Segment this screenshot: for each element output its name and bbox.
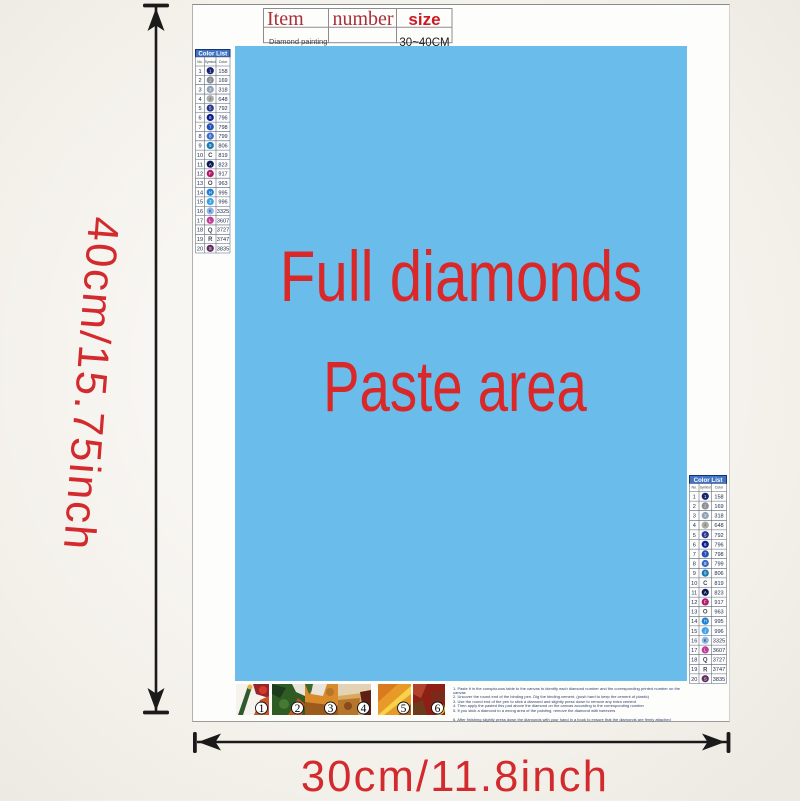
svg-text:Color List: Color List (198, 51, 227, 58)
svg-text:169: 169 (714, 504, 723, 510)
svg-text:19: 19 (197, 237, 203, 243)
svg-text:6: 6 (198, 116, 201, 122)
svg-text:806: 806 (714, 571, 723, 577)
svg-text:10: 10 (691, 581, 697, 587)
svg-text:10: 10 (197, 153, 203, 159)
svg-text:819: 819 (218, 153, 227, 159)
svg-text:3: 3 (328, 703, 334, 715)
svg-text:796: 796 (714, 542, 723, 548)
svg-text:K: K (209, 209, 212, 214)
svg-text:8: 8 (198, 134, 201, 140)
svg-text:A: A (704, 590, 707, 595)
svg-text:14: 14 (691, 619, 697, 625)
svg-text:17: 17 (197, 218, 203, 224)
svg-text:12: 12 (197, 172, 203, 178)
svg-text:7: 7 (693, 552, 696, 558)
svg-text:4: 4 (361, 703, 367, 715)
svg-text:Q: Q (208, 228, 213, 234)
svg-text:S: S (209, 246, 212, 251)
svg-text:Symbol: Symbol (205, 60, 216, 64)
svg-text:11: 11 (691, 590, 697, 596)
svg-text:3: 3 (198, 87, 201, 93)
svg-text:19: 19 (691, 667, 697, 673)
svg-text:6: 6 (435, 703, 441, 715)
svg-text:823: 823 (218, 162, 227, 168)
svg-text:8: 8 (693, 562, 696, 568)
svg-text:798: 798 (218, 125, 227, 131)
svg-text:R: R (703, 667, 708, 673)
svg-text:3607: 3607 (713, 648, 725, 654)
svg-text:4: 4 (198, 97, 201, 103)
svg-text:648: 648 (714, 523, 723, 529)
svg-text:Q: Q (703, 658, 708, 664)
svg-text:9: 9 (198, 144, 201, 150)
svg-text:1: 1 (259, 703, 265, 715)
svg-text:798: 798 (714, 552, 723, 558)
svg-text:14: 14 (197, 190, 203, 196)
svg-text:17: 17 (691, 648, 697, 654)
svg-text:3727: 3727 (217, 228, 229, 234)
svg-text:3747: 3747 (713, 667, 725, 673)
svg-text:No.: No. (691, 486, 697, 490)
svg-text:20: 20 (197, 246, 203, 252)
svg-text:3325: 3325 (217, 209, 229, 215)
svg-text:Color: Color (715, 486, 724, 490)
svg-text:318: 318 (218, 87, 227, 93)
svg-text:20: 20 (691, 677, 697, 683)
svg-text:13: 13 (197, 181, 203, 187)
svg-text:2: 2 (295, 703, 301, 715)
svg-text:5: 5 (401, 703, 407, 715)
svg-text:917: 917 (218, 172, 227, 178)
svg-text:3835: 3835 (713, 677, 725, 683)
svg-text:318: 318 (714, 514, 723, 520)
svg-text:3727: 3727 (713, 658, 725, 664)
svg-text:3747: 3747 (217, 237, 229, 243)
svg-text:6: 6 (693, 542, 696, 548)
svg-text:F: F (704, 600, 707, 605)
svg-text:15: 15 (197, 200, 203, 206)
svg-text:15: 15 (691, 629, 697, 635)
svg-text:A: A (209, 162, 212, 167)
svg-text:18: 18 (691, 658, 697, 664)
svg-text:11: 11 (197, 162, 203, 168)
svg-text:K: K (704, 638, 707, 643)
svg-text:648: 648 (218, 97, 227, 103)
svg-text:158: 158 (714, 494, 723, 500)
svg-text:Symbol: Symbol (700, 486, 711, 490)
svg-text:2: 2 (693, 504, 696, 510)
svg-text:996: 996 (714, 629, 723, 635)
svg-text:806: 806 (218, 144, 227, 150)
svg-text:2: 2 (198, 78, 201, 84)
svg-text:18: 18 (197, 228, 203, 234)
svg-text:3607: 3607 (217, 218, 229, 224)
svg-text:C: C (208, 153, 213, 159)
svg-text:13: 13 (691, 610, 697, 616)
svg-text:823: 823 (714, 590, 723, 596)
svg-text:J: J (209, 199, 211, 204)
svg-text:3835: 3835 (217, 246, 229, 252)
svg-text:4: 4 (693, 523, 696, 529)
svg-text:9: 9 (693, 571, 696, 577)
svg-text:O: O (208, 181, 213, 187)
svg-text:R: R (208, 237, 213, 243)
svg-text:917: 917 (714, 600, 723, 606)
svg-text:963: 963 (218, 181, 227, 187)
svg-text:C: C (703, 581, 708, 587)
svg-text:963: 963 (714, 610, 723, 616)
svg-text:S: S (704, 676, 707, 681)
svg-text:Color: Color (219, 60, 228, 64)
svg-text:1: 1 (693, 494, 696, 500)
svg-text:J: J (704, 628, 706, 633)
svg-text:16: 16 (691, 638, 697, 644)
svg-text:5: 5 (198, 106, 201, 112)
svg-text:796: 796 (218, 116, 227, 122)
svg-text:995: 995 (714, 619, 723, 625)
svg-text:H: H (704, 619, 707, 624)
svg-text:799: 799 (714, 562, 723, 568)
svg-text:Color List: Color List (694, 477, 723, 484)
svg-text:H: H (209, 190, 212, 195)
svg-text:No.: No. (197, 60, 203, 64)
svg-text:16: 16 (197, 209, 203, 215)
svg-text:819: 819 (714, 581, 723, 587)
svg-text:1: 1 (198, 69, 201, 75)
svg-text:995: 995 (218, 190, 227, 196)
svg-text:792: 792 (218, 106, 227, 112)
svg-text:O: O (703, 610, 708, 616)
svg-text:799: 799 (218, 134, 227, 140)
svg-text:F: F (209, 171, 212, 176)
svg-text:158: 158 (218, 69, 227, 75)
svg-text:3: 3 (693, 514, 696, 520)
svg-text:3325: 3325 (713, 638, 725, 644)
svg-text:996: 996 (218, 200, 227, 206)
svg-text:5: 5 (693, 533, 696, 539)
svg-text:12: 12 (691, 600, 697, 606)
svg-text:7: 7 (198, 125, 201, 131)
svg-text:169: 169 (218, 78, 227, 84)
svg-text:792: 792 (714, 533, 723, 539)
